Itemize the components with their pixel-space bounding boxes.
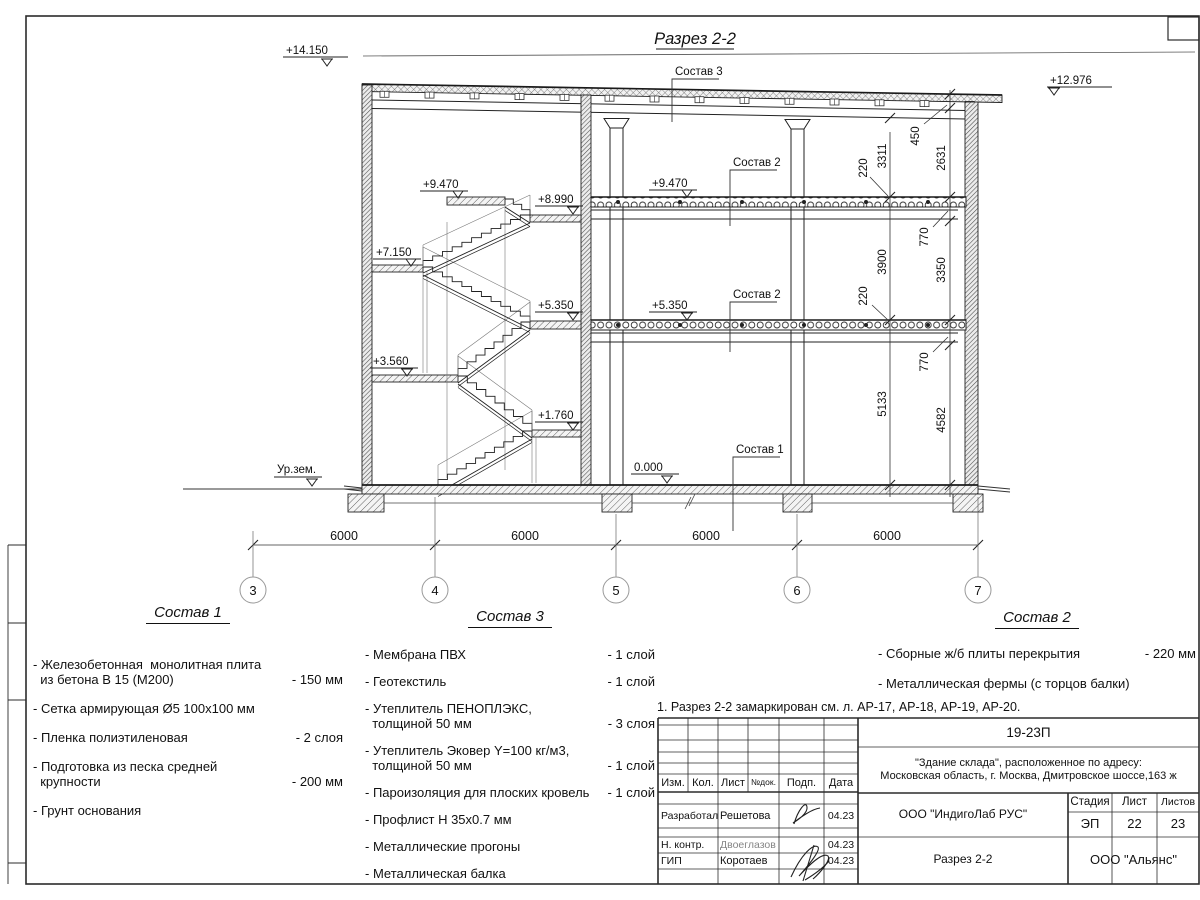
row-role: Разработал <box>661 804 717 828</box>
left-wall <box>362 85 372 490</box>
item-name: - Металлическая балка <box>365 866 506 881</box>
axis-bubbles: 3 4 5 6 7 <box>240 577 991 603</box>
elev-9470-right: +9.470 <box>652 178 688 190</box>
dim-450: 450 <box>910 126 922 145</box>
item-value: - 1 слой <box>607 647 655 662</box>
item-value: - 150 мм <box>292 672 343 687</box>
elev-9470-left: +9.470 <box>423 179 459 191</box>
row-role: ГИП <box>661 853 717 869</box>
elev-7150: +7.150 <box>376 247 412 259</box>
corner-stamp-box <box>1168 17 1199 40</box>
dim-span-1: 6000 <box>330 529 358 543</box>
stair-projection-lines <box>423 207 536 483</box>
composition-3-title: Состав 3 <box>365 608 655 625</box>
item-name: - Подготовка из песка средней крупности <box>33 759 217 789</box>
composition-list-3: Состав 3 - Мембрана ПВХ- 1 слой - Геотек… <box>365 608 655 881</box>
right-wall <box>965 102 978 490</box>
row-date: 04.23 <box>824 804 858 828</box>
dim-span-4: 6000 <box>873 529 901 543</box>
stair-landings <box>372 197 581 483</box>
item-name: - Железобетонная монолитная плита из бет… <box>33 657 261 687</box>
item-value: - 2 слоя <box>296 730 343 745</box>
dimension-leaders <box>870 105 948 352</box>
list-item: - Геотекстиль- 1 слой <box>365 674 655 689</box>
elev-8990: +8.990 <box>538 194 574 206</box>
level-line <box>363 52 1195 56</box>
contractor-org: ООО "Альянс" <box>1068 837 1199 883</box>
row-role: Н. контр. <box>661 837 717 853</box>
composition-list-2: Состав 2 - Сборные ж/б плиты перекрытия-… <box>878 609 1196 691</box>
elev-12976: +12.976 <box>1050 75 1092 87</box>
item-value: - 1 слой <box>607 674 655 689</box>
list-item: - Металлическая балка <box>365 866 655 881</box>
item-value: - 3 слоя <box>608 716 655 731</box>
item-value: - 1 слой <box>607 758 655 773</box>
col-kol: Кол. <box>688 774 718 792</box>
column-capital <box>604 119 629 129</box>
dim-3900: 3900 <box>877 249 889 275</box>
row-name: Двоеглазов <box>720 837 777 853</box>
item-name: - Мембрана ПВХ <box>365 647 466 662</box>
design-org: ООО "ИндигоЛаб РУС" <box>858 793 1068 837</box>
elev-5350-right: +5.350 <box>652 300 688 312</box>
elev-14150: +14.150 <box>286 45 328 57</box>
axis-6: 6 <box>793 583 800 598</box>
row-date: 04.23 <box>824 853 858 869</box>
list-item: - Пленка полиэтиленовая- 2 слоя <box>33 730 343 745</box>
item-value: - 1 слой <box>607 785 655 800</box>
item-name: - Профлист Н 35х0.7 мм <box>365 812 512 827</box>
dim-3311: 3311 <box>877 144 889 169</box>
dim-span-3: 6000 <box>692 529 720 543</box>
foundation-pad <box>953 494 983 512</box>
col-doc: №док. <box>748 774 779 792</box>
sheet-number: 22 <box>1112 812 1157 837</box>
sheet-label: Лист <box>1112 793 1157 812</box>
elev-0000: 0.000 <box>634 462 663 474</box>
list-item: - Утеплитель Эковер Y=100 кг/м3, толщино… <box>365 743 655 773</box>
dim-220a: 220 <box>858 158 870 177</box>
column-capital <box>785 120 810 130</box>
foundation-pad <box>602 494 632 512</box>
list-item: - Железобетонная монолитная плита из бет… <box>33 657 343 687</box>
dim-5133: 5133 <box>877 391 889 417</box>
columns <box>610 128 804 485</box>
item-name: - Пленка полиэтиленовая <box>33 730 188 745</box>
dim-span-2: 6000 <box>511 529 539 543</box>
sheets-label: Листов <box>1157 793 1199 812</box>
col-izm: Изм. <box>658 774 688 792</box>
list-item: - Подготовка из песка средней крупности-… <box>33 759 343 789</box>
stair-shaft-wall <box>581 95 591 490</box>
col-list: Лист <box>718 774 748 792</box>
list-item: - Грунт основания <box>33 803 343 818</box>
axis-7: 7 <box>974 583 981 598</box>
note-text: 1. Разрез 2-2 замаркирован см. л. АР-17,… <box>657 700 1020 714</box>
label-sostav2-upper: Состав 2 <box>733 157 781 169</box>
dim-4582: 4582 <box>936 407 948 433</box>
foundation-pad <box>783 494 812 512</box>
list-item: - Профлист Н 35х0.7 мм <box>365 812 655 827</box>
row-name: Коротаев <box>720 853 777 869</box>
item-name: - Металлические прогоны <box>365 839 520 854</box>
doc-number: 19-23П <box>858 718 1199 747</box>
sheets-total: 23 <box>1157 812 1199 837</box>
item-value: - 200 мм <box>292 774 343 789</box>
list-item: - Пароизоляция для плоских кровель- 1 сл… <box>365 785 655 800</box>
item-name: - Металлическая фермы (с торцов балки) <box>878 676 1130 691</box>
ground-level-label: Ур.зем. <box>277 464 316 476</box>
elev-5350-left: +5.350 <box>538 300 574 312</box>
axis-3: 3 <box>249 583 256 598</box>
roof <box>362 84 1002 129</box>
col-sign: Подп. <box>779 774 824 792</box>
list-item: - Сборные ж/б плиты перекрытия- 220 мм <box>878 646 1196 661</box>
item-name: - Сетка армирующая Ø5 100x100 мм <box>33 701 255 716</box>
stage-value: ЭП <box>1068 812 1112 837</box>
left-attribute-column <box>8 545 26 884</box>
label-sostav2-lower: Состав 2 <box>733 289 781 301</box>
item-name: - Сборные ж/б плиты перекрытия <box>878 646 1080 661</box>
stair-flights <box>423 195 532 497</box>
composition-1-title: Состав 1 <box>33 604 343 621</box>
list-item: - Металлические прогоны <box>365 839 655 854</box>
dim-770a: 770 <box>919 227 931 246</box>
drawing-sheet: { "sheet": { "title": "Разрез 2-2", "not… <box>0 0 1200 900</box>
row-date: 04.23 <box>824 837 858 853</box>
dim-220b: 220 <box>858 286 870 305</box>
item-name: - Утеплитель ПЕНОПЛЭКС, толщиной 50 мм <box>365 701 532 731</box>
project-object: "Здание склада", расположенное по адресу… <box>858 747 1199 793</box>
axis-4: 4 <box>431 583 438 598</box>
drawing-title: Разрез 2-2 <box>654 30 736 49</box>
dim-770b: 770 <box>919 352 931 371</box>
list-item: - Металлическая фермы (с торцов балки) <box>878 676 1196 691</box>
composition-leaders: Состав 3 Состав 2 Состав 2 Состав 1 <box>672 66 784 531</box>
elev-3560: +3.560 <box>373 356 409 368</box>
list-item: - Утеплитель ПЕНОПЛЭКС, толщиной 50 мм- … <box>365 701 655 731</box>
page-title: Разрез 2-2 <box>654 30 736 48</box>
floor-slabs <box>591 197 966 342</box>
axis-5: 5 <box>612 583 619 598</box>
item-name: - Пароизоляция для плоских кровель <box>365 785 589 800</box>
elev-1760: +1.760 <box>538 410 574 422</box>
foundation-pad <box>348 494 384 512</box>
dim-2631: 2631 <box>936 145 948 171</box>
axis-dimensions: 6000 6000 6000 6000 3 4 5 6 7 <box>240 497 991 603</box>
label-sostav3: Состав 3 <box>675 66 723 78</box>
item-value: - 220 мм <box>1145 646 1196 661</box>
label-sostav1: Состав 1 <box>736 444 784 456</box>
composition-2-title: Состав 2 <box>878 609 1196 626</box>
slab-5350 <box>591 320 966 330</box>
row-name: Решетова <box>720 804 777 828</box>
stage-label: Стадия <box>1068 793 1112 812</box>
break-mark <box>685 494 695 509</box>
list-item: - Сетка армирующая Ø5 100x100 мм <box>33 701 343 716</box>
dim-3350: 3350 <box>936 257 948 283</box>
slab-9470 <box>591 197 966 207</box>
list-item: - Мембрана ПВХ- 1 слой <box>365 647 655 662</box>
item-name: - Утеплитель Эковер Y=100 кг/м3, толщино… <box>365 743 569 773</box>
col-date: Дата <box>824 774 858 792</box>
item-name: - Геотекстиль <box>365 674 446 689</box>
drawing-name: Разрез 2-2 <box>858 837 1068 883</box>
item-name: - Грунт основания <box>33 803 141 818</box>
composition-list-1: Состав 1 - Железобетонная монолитная пли… <box>33 604 343 818</box>
title-block: 19-23П "Здание склада", расположенное по… <box>658 718 1199 884</box>
